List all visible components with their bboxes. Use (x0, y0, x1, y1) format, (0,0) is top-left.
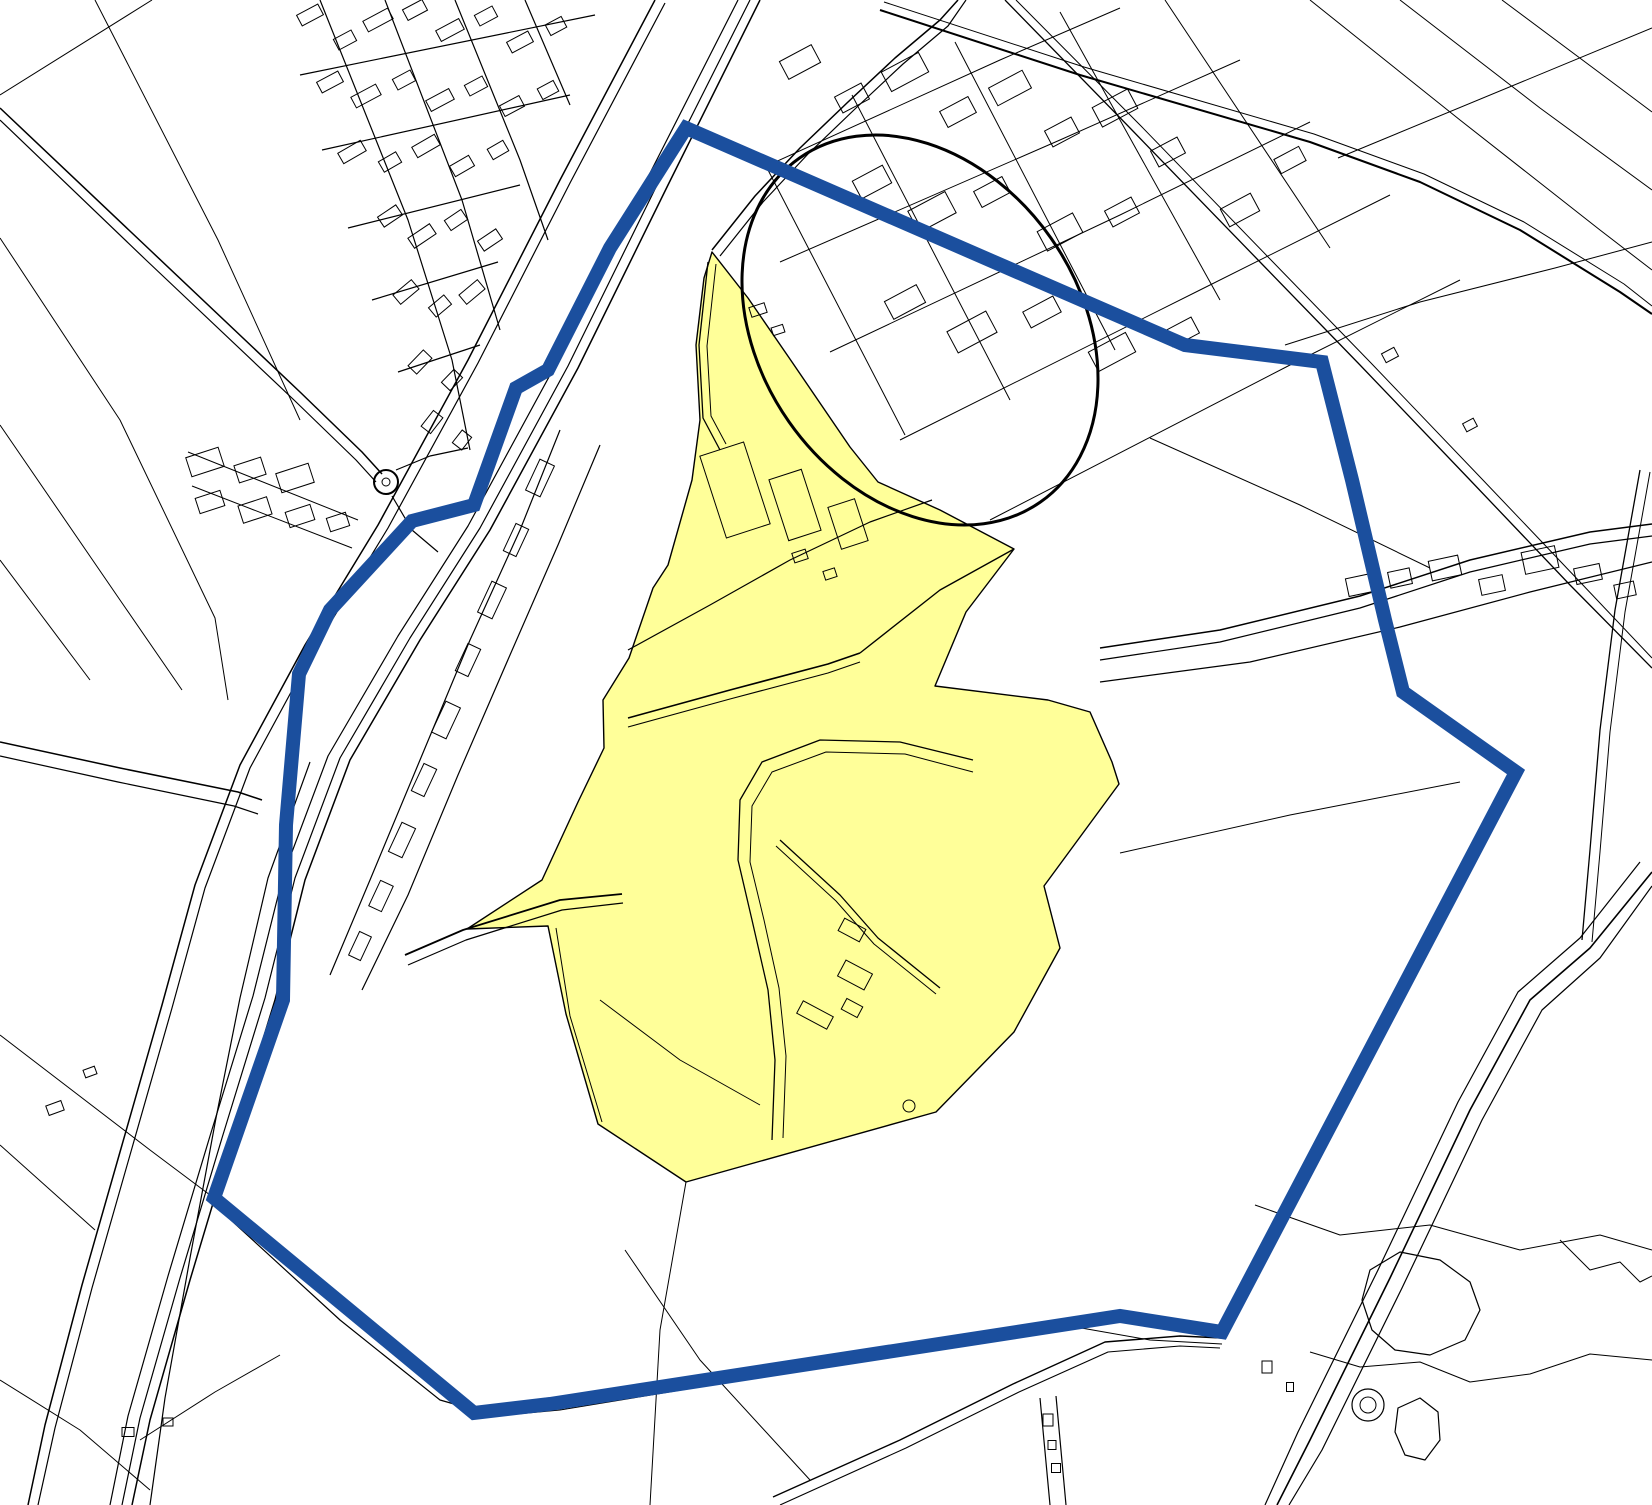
plan-map-canvas[interactable] (0, 0, 1652, 1505)
map-svg (0, 0, 1652, 1505)
